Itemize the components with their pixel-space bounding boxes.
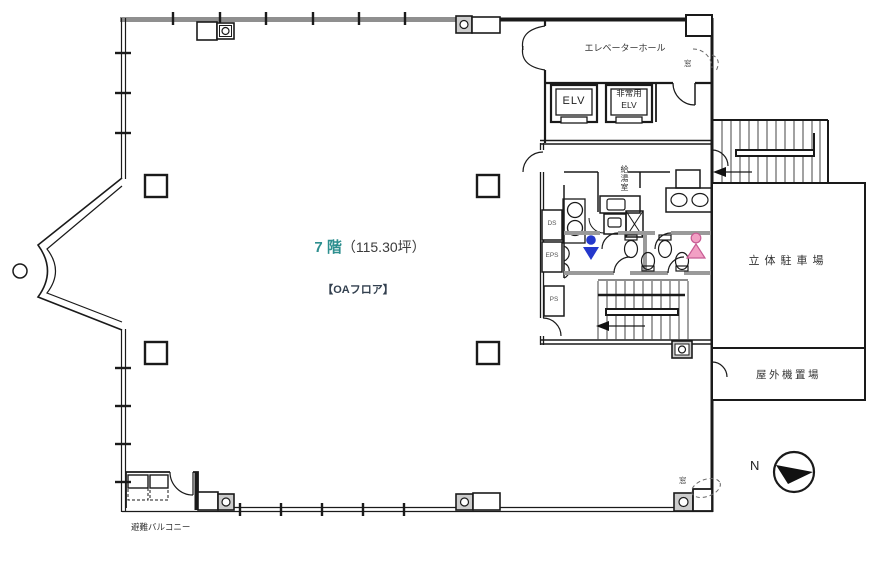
stair-railing bbox=[606, 309, 678, 315]
toilet bbox=[625, 241, 638, 258]
balcony-equipment bbox=[150, 475, 168, 488]
wash-basin bbox=[568, 203, 583, 218]
shaft-label-ds: DS bbox=[542, 220, 562, 227]
north-compass-icon bbox=[774, 452, 814, 492]
window-mullions bbox=[115, 12, 405, 516]
room-label-emergency-elv-2: ELV bbox=[606, 101, 652, 111]
hall-door bbox=[673, 83, 695, 105]
floor-plan: 7 階（115.30坪） 【OAフロア】 エレベーターホール ELV 非常用 E… bbox=[0, 0, 875, 561]
floor-title: 7 階（115.30坪） bbox=[290, 239, 450, 256]
stair-access-door bbox=[712, 150, 728, 166]
floor-number: 7 階 bbox=[314, 239, 342, 256]
elevator-hall-walls bbox=[522, 15, 712, 143]
urinal bbox=[564, 263, 569, 278]
balcony-door bbox=[170, 472, 193, 495]
room-label-evacuation-balcony: 避難バルコニー bbox=[131, 523, 190, 533]
floor-area: （115.30坪） bbox=[342, 239, 426, 255]
annotation-window-upper: 窓 bbox=[684, 60, 692, 69]
emergency-elv-door-sill bbox=[616, 117, 642, 123]
evacuation-balcony-structure bbox=[126, 472, 198, 510]
internal-staircase bbox=[596, 280, 688, 340]
shaft-label-eps: EPS bbox=[542, 252, 562, 259]
toilet bbox=[676, 253, 689, 270]
annotation-window-lower: 窓 bbox=[679, 477, 687, 486]
corner-block bbox=[686, 15, 712, 36]
bay-window bbox=[13, 178, 122, 330]
room-label-kitchenette: 給湯室 bbox=[615, 165, 629, 209]
stair-door bbox=[543, 318, 561, 336]
window-swing-upper bbox=[693, 49, 712, 68]
stair-direction-arrow bbox=[713, 167, 726, 177]
core-entry-door bbox=[523, 152, 543, 172]
room-label-emergency-elv-1: 非常用 bbox=[606, 89, 652, 99]
double-door bbox=[522, 26, 545, 70]
stair-railing bbox=[736, 150, 814, 156]
womens-room-icon bbox=[687, 233, 705, 258]
stall-door bbox=[614, 257, 630, 273]
elv-door-sill bbox=[561, 117, 587, 123]
columns bbox=[145, 175, 499, 364]
room-label-outdoor-equipment: 屋外機置場 bbox=[712, 369, 865, 381]
north-label: N bbox=[750, 459, 759, 474]
floor-type-note: 【OAフロア】 bbox=[318, 284, 398, 297]
stall-door bbox=[602, 233, 618, 249]
shaft-label-ps: PS bbox=[544, 296, 564, 303]
room-label-parking: 立体駐車場 bbox=[712, 255, 865, 268]
bay-window-post bbox=[13, 264, 27, 278]
room-label-elv: ELV bbox=[551, 95, 597, 108]
room-label-elevator-hall: エレベーターホール bbox=[575, 43, 675, 53]
kitchenette-fixtures bbox=[563, 170, 712, 278]
urinal bbox=[564, 246, 569, 261]
vanity-counter bbox=[666, 188, 712, 212]
floor-plan-drawing bbox=[0, 0, 875, 561]
toilet bbox=[659, 241, 672, 258]
external-staircase bbox=[712, 120, 828, 183]
